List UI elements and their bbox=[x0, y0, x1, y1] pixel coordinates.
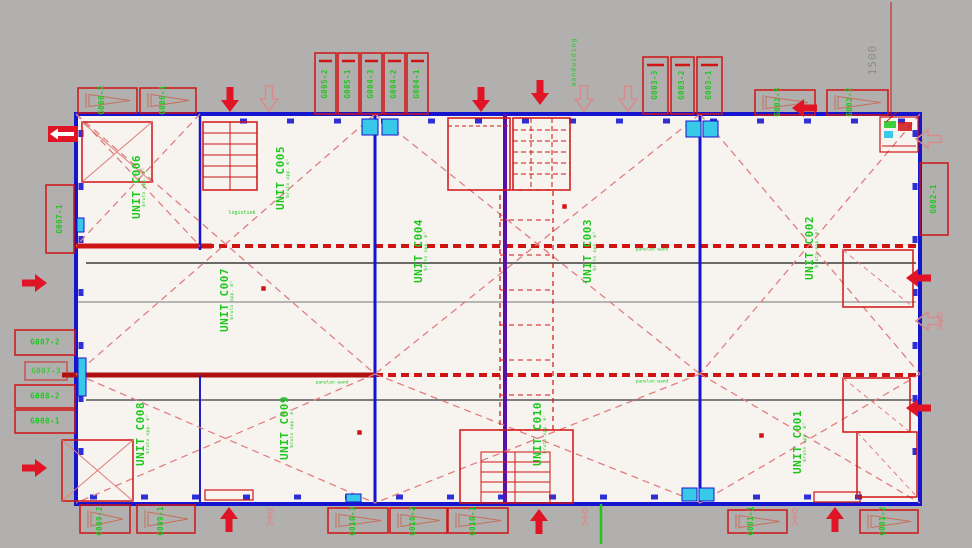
unit-label-c009: UNIT C009bruto opp. m² bbox=[279, 396, 295, 460]
vent-label-g003-3: G003-3 bbox=[651, 70, 659, 100]
vent-label-g003-1: G003-1 bbox=[705, 70, 713, 100]
vent-label-g001-2: G001-2 bbox=[879, 506, 887, 536]
vent-label-g008-2: G008-2 bbox=[30, 392, 60, 401]
vent-label-g003-2: G003-2 bbox=[678, 70, 686, 100]
vent-label-g002-1: G002-1 bbox=[930, 184, 938, 214]
vent-label-g006-1: G006-1 bbox=[159, 85, 167, 115]
vent-label-g008-1: G008-1 bbox=[30, 417, 60, 426]
unit-label-c008: UNIT C008bruto opp. m² bbox=[135, 402, 151, 466]
vertical-note: aanduiding bbox=[571, 37, 578, 86]
unit-label-c010: UNIT C010bruto opp. m² bbox=[532, 402, 548, 466]
vent-label-g010-3: G010-3 bbox=[349, 506, 357, 536]
vent-label-g004-1: G004-1 bbox=[413, 69, 421, 99]
dimension-label: 1500 bbox=[867, 45, 879, 76]
exit-arrow-icon bbox=[48, 126, 78, 142]
unit-label-c001: UNIT C001bruto opp. m² bbox=[792, 410, 808, 474]
unit-label-c005: UNIT C005bruto opp. m² bbox=[275, 146, 291, 210]
unit-label-c004: UNIT C004bruto opp. m² bbox=[413, 219, 429, 283]
wall-note-2: panelen wand bbox=[636, 248, 669, 253]
vent-label-g007-1: G007-1 bbox=[56, 204, 64, 234]
vent-label-g005-1: G005-1 bbox=[344, 69, 352, 99]
wall-note-1: panelen wand bbox=[316, 381, 349, 386]
vent-label-g007-3: G007-3 bbox=[31, 367, 61, 376]
vent-label-g009-2: G009-2 bbox=[96, 506, 104, 536]
vent-label-g009-1: G009-1 bbox=[157, 506, 165, 536]
vent-label-g004-3: G004-3 bbox=[367, 69, 375, 99]
vent-label-g007-2: G007-2 bbox=[30, 338, 60, 347]
vent-label-g010-2: G010-2 bbox=[409, 506, 417, 536]
unit-label-c006: UNIT C006bruto opp. m² bbox=[131, 155, 147, 219]
unit-label-c003: UNIT C003bruto opp. m² bbox=[582, 219, 598, 283]
vent-label-g010-1: G010-1 bbox=[469, 506, 477, 536]
vent-label-g006-2: G006-2 bbox=[98, 85, 106, 115]
unit-label-c002: UNIT C002bruto opp. m² bbox=[804, 216, 820, 280]
vent-label-g004-2: G004-2 bbox=[390, 69, 398, 99]
floorplan-viewport: UNIT C001bruto opp. m² UNIT C002bruto op… bbox=[0, 0, 972, 548]
vent-label-g002-2: G002-2 bbox=[846, 87, 854, 117]
stair-note: logistiek bbox=[228, 210, 255, 216]
vent-label-g002-3: G002-3 bbox=[774, 87, 782, 117]
wall-note-3: panelen wand bbox=[636, 380, 669, 385]
vent-label-g001-1: G001-1 bbox=[747, 506, 755, 536]
vent-label-g005-2: G005-2 bbox=[321, 69, 329, 99]
unit-label-c007: UNIT C007bruto opp. m² bbox=[219, 268, 235, 332]
